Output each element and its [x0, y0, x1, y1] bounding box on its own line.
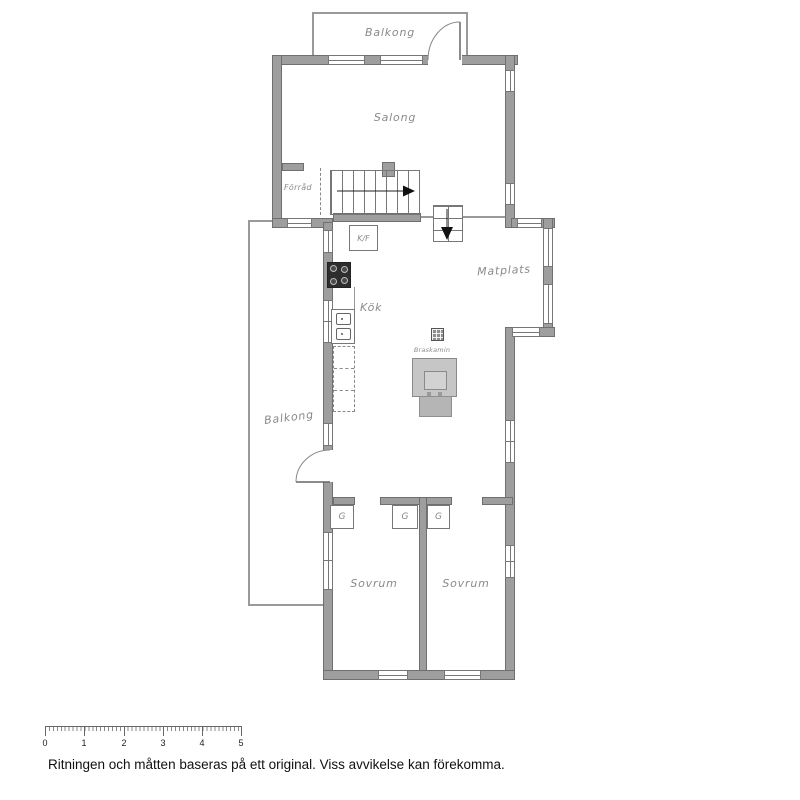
room-label-sovrum-left: Sovrum — [333, 577, 415, 590]
door-arc — [296, 450, 330, 482]
stairs-up-arrow-icon — [403, 186, 415, 197]
room-label-braskamin: Braskamin — [404, 346, 460, 354]
room-label-balcony-top: Balkong — [312, 26, 468, 39]
stairs-down-arrow-icon — [441, 227, 453, 240]
room-label-salong: Salong — [272, 111, 518, 124]
floor-plan: K/F G G G Balkong Salong Förråd Kök Mat — [0, 0, 800, 800]
room-label-forrad: Förråd — [284, 183, 312, 192]
room-label-sovrum-right: Sovrum — [427, 577, 505, 590]
room-label-kok: Kök — [360, 301, 382, 314]
